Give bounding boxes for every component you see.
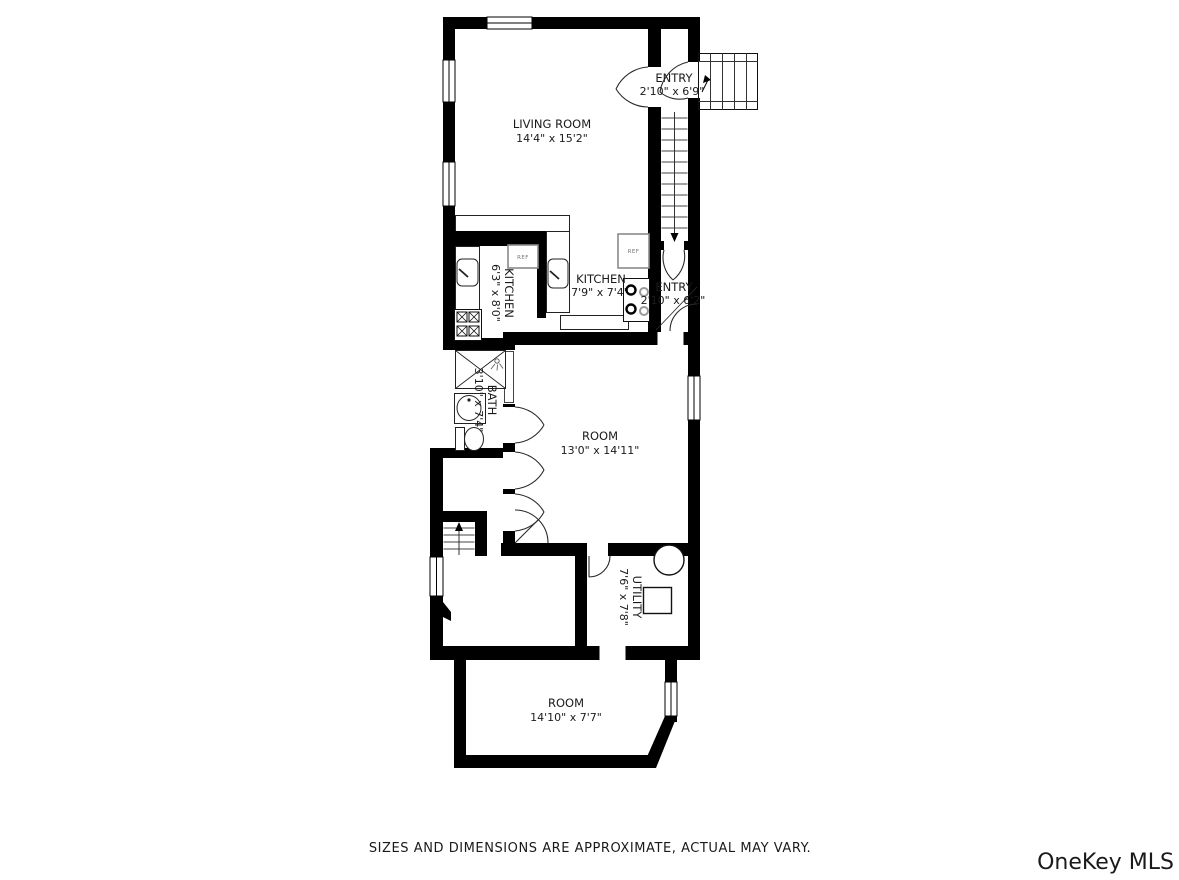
floorplan-page: REF REF xyxy=(0,0,1179,880)
door-swing-icon xyxy=(515,510,548,543)
window-icon xyxy=(665,682,677,716)
wall xyxy=(443,17,700,29)
wall xyxy=(443,602,451,621)
room-dims: 7'6" x 7'8" xyxy=(617,568,630,626)
room-dims: 14'4" x 15'2" xyxy=(516,132,588,145)
threshold xyxy=(655,332,686,345)
fridge-label: REF xyxy=(517,255,529,261)
window-icon xyxy=(443,162,455,206)
room-label: ROOM xyxy=(548,696,584,710)
wall xyxy=(443,231,545,246)
threshold-jamb xyxy=(684,332,687,345)
fridge-icon: REF xyxy=(508,245,538,268)
fridge-icon: REF xyxy=(618,234,649,268)
stove-icon xyxy=(455,310,482,341)
wall xyxy=(430,448,443,648)
counter xyxy=(456,216,570,232)
door-opening xyxy=(503,494,515,531)
threshold xyxy=(597,646,628,660)
fridge-label: REF xyxy=(628,249,640,255)
sink-icon xyxy=(457,259,478,286)
disclaimer-text: SIZES AND DIMENSIONS ARE APPROXIMATE, AC… xyxy=(369,841,811,856)
room-dims: 13'0" x 14'11" xyxy=(561,444,640,457)
wall-chamfer xyxy=(642,716,677,768)
room-dims: 2'10" x 6'2" xyxy=(641,294,706,307)
wall xyxy=(575,556,587,656)
counter xyxy=(561,316,629,330)
door-swing-icon xyxy=(663,250,685,280)
window-icon xyxy=(443,60,455,102)
staircase-icon xyxy=(444,522,475,555)
room-label: KITCHEN xyxy=(576,272,626,286)
room-label: BATH xyxy=(485,385,499,416)
room-dims: 14'10" x 7'7" xyxy=(530,711,602,724)
wall xyxy=(430,646,700,660)
onekey-mls-watermark: OneKey MLS xyxy=(1037,850,1174,875)
wall xyxy=(537,231,546,318)
room-label: KITCHEN xyxy=(502,268,516,318)
wall xyxy=(648,241,664,250)
room-label: UTILITY xyxy=(630,576,644,620)
wall xyxy=(454,755,655,768)
door-swing-icon xyxy=(515,494,544,531)
sink-icon xyxy=(548,259,568,288)
wall xyxy=(684,241,700,250)
washer-icon xyxy=(644,588,672,614)
threshold-jamb xyxy=(626,646,629,660)
room-dims: 7'9" x 7'4" xyxy=(571,286,629,299)
wall xyxy=(475,511,487,556)
threshold-jamb xyxy=(655,332,658,345)
window-icon xyxy=(688,376,700,420)
room-dims: 2'10" x 6'9" xyxy=(640,85,705,98)
floorplan-canvas: REF REF xyxy=(0,0,1179,880)
door-opening xyxy=(503,407,515,443)
room-label: ENTRY xyxy=(655,280,693,294)
room-label: LIVING ROOM xyxy=(513,117,591,131)
door-swing-icon xyxy=(589,556,610,577)
exterior-stairs-icon xyxy=(699,54,758,110)
staircase-icon xyxy=(662,112,688,242)
wall xyxy=(454,660,466,768)
door-swing-icon xyxy=(515,407,544,443)
room-label: ENTRY xyxy=(655,71,693,85)
room-label: ROOM xyxy=(582,429,618,443)
room-dims: 3'10" x 7'4" xyxy=(472,368,485,433)
door-opening xyxy=(587,543,608,556)
door-opening xyxy=(503,452,515,489)
threshold-jamb xyxy=(597,646,600,660)
door-swing-icon xyxy=(515,452,544,489)
window-icon xyxy=(430,557,443,596)
water-heater-icon xyxy=(654,545,684,575)
room-dims: 6'3" x 8'0" xyxy=(489,264,502,322)
window-icon xyxy=(487,17,532,29)
